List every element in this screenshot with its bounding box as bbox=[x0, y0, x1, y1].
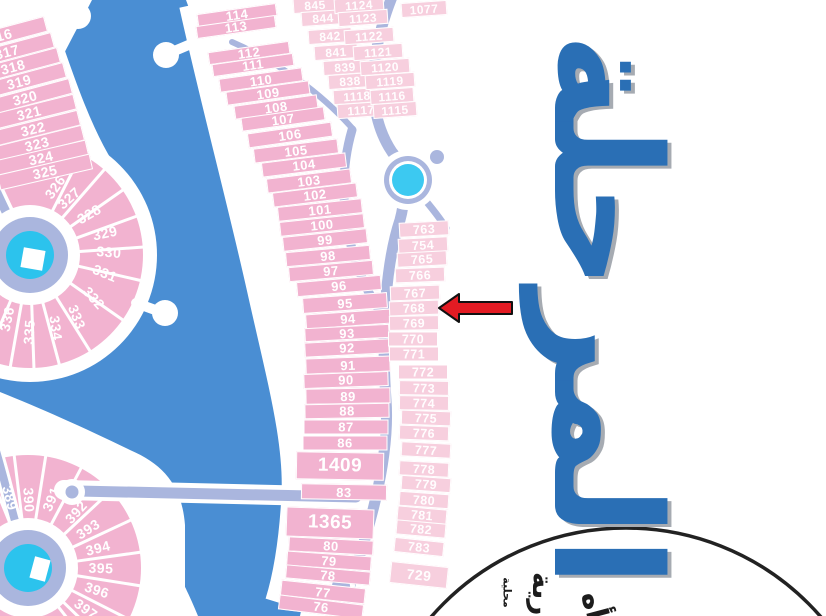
plot-777[interactable]: 777 bbox=[401, 441, 452, 459]
plot-1365[interactable]: 1365 bbox=[286, 506, 375, 539]
plot-335[interactable]: 335 bbox=[20, 319, 38, 345]
plot-329[interactable]: 329 bbox=[91, 223, 119, 244]
plot-90[interactable]: 90 bbox=[303, 371, 388, 389]
plot-766[interactable]: 766 bbox=[395, 267, 445, 284]
plot-332[interactable]: 332 bbox=[80, 283, 109, 312]
plot-768[interactable]: 768 bbox=[389, 300, 439, 317]
plot-1115[interactable]: 1115 bbox=[373, 101, 418, 119]
plot-763[interactable]: 763 bbox=[399, 220, 450, 238]
plot-775[interactable]: 775 bbox=[401, 410, 451, 427]
plot-395[interactable]: 395 bbox=[88, 560, 113, 577]
stamp-text-small: محلية bbox=[501, 577, 514, 607]
plot-390[interactable]: 390 bbox=[20, 487, 37, 513]
plot-765[interactable]: 765 bbox=[397, 250, 448, 268]
plot-336[interactable]: 336 bbox=[0, 305, 17, 333]
plot-389[interactable]: 389 bbox=[0, 484, 21, 512]
arrow-shape bbox=[439, 294, 512, 322]
plot-1123[interactable]: 1123 bbox=[338, 9, 389, 27]
phase-title: المرحلة bbox=[500, 0, 712, 616]
plot-770[interactable]: 770 bbox=[388, 332, 438, 347]
plot-88[interactable]: 88 bbox=[304, 403, 389, 419]
plot-783[interactable]: 783 bbox=[393, 537, 444, 557]
plot-86[interactable]: 86 bbox=[303, 436, 388, 451]
plot-773[interactable]: 773 bbox=[399, 380, 449, 396]
plot-391[interactable]: 391 bbox=[39, 484, 63, 513]
plot-330[interactable]: 330 bbox=[96, 243, 122, 261]
plot-333[interactable]: 333 bbox=[65, 302, 89, 331]
plot-394[interactable]: 394 bbox=[84, 537, 112, 559]
plot-782[interactable]: 782 bbox=[395, 519, 446, 538]
plot-83[interactable]: 83 bbox=[301, 483, 387, 500]
plot-774[interactable]: 774 bbox=[399, 395, 449, 411]
plot-772[interactable]: 772 bbox=[398, 365, 448, 380]
masterplan-map: 3163173183193203213223233243253263273283… bbox=[0, 0, 826, 616]
plot-92[interactable]: 92 bbox=[304, 338, 390, 357]
stamp-text-large: ارية bbox=[526, 572, 559, 616]
plot-729[interactable]: 729 bbox=[389, 561, 449, 589]
plot-396[interactable]: 396 bbox=[83, 579, 112, 602]
plot-771[interactable]: 771 bbox=[389, 347, 439, 362]
plot-1122[interactable]: 1122 bbox=[344, 27, 395, 45]
plot-334[interactable]: 334 bbox=[46, 315, 65, 342]
plot-769[interactable]: 769 bbox=[389, 315, 439, 331]
plot-331[interactable]: 331 bbox=[90, 261, 119, 285]
plot-1409[interactable]: 1409 bbox=[296, 451, 384, 481]
plot-1077[interactable]: 1077 bbox=[401, 0, 448, 18]
plot-776[interactable]: 776 bbox=[399, 425, 449, 442]
plot-328[interactable]: 328 bbox=[74, 201, 104, 227]
plot-87[interactable]: 87 bbox=[304, 420, 389, 435]
locator-arrow bbox=[436, 291, 518, 327]
